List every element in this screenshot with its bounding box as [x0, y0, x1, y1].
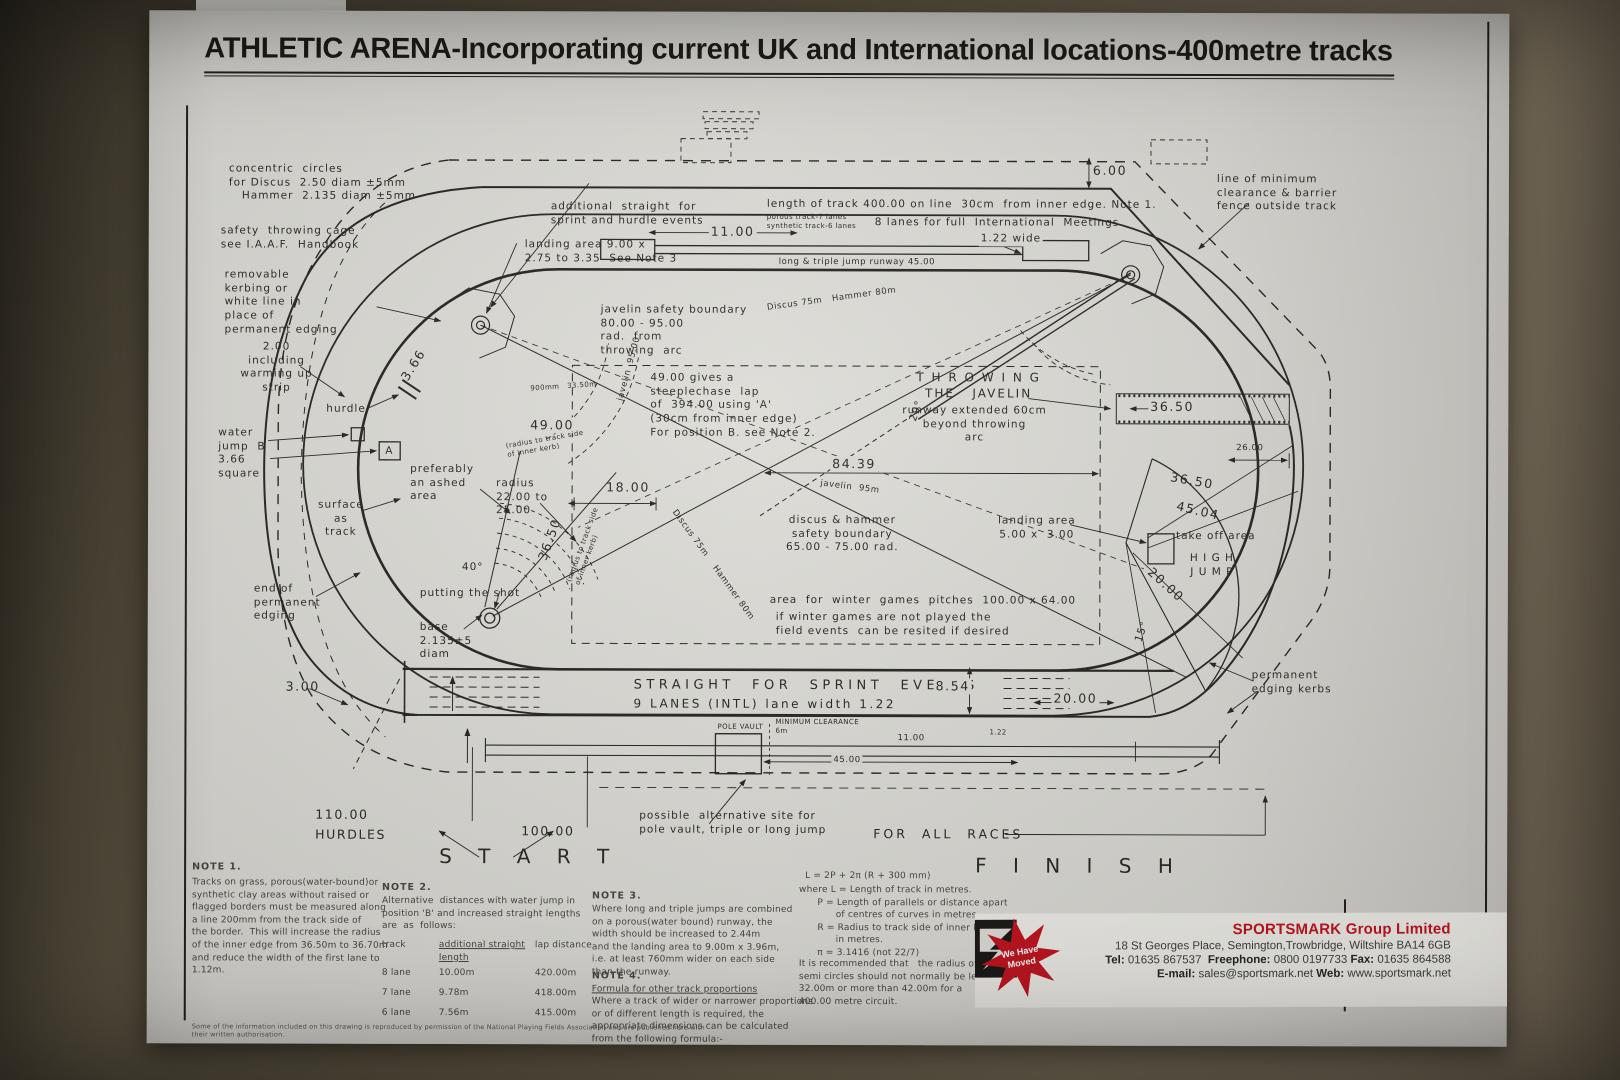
label-for-all-races: FOR ALL RACES	[873, 826, 1023, 843]
note2-col-track: track	[382, 939, 406, 952]
label-water-jump: water jump B 3.66 square	[218, 426, 266, 481]
note2-row2-lap: 418.00m	[535, 987, 577, 1000]
label-alt-site: possible alternative site for pole vault…	[639, 810, 826, 838]
vendor-contact-block: SPORTSMARK Group Limited 18 St Georges P…	[1021, 921, 1451, 981]
web-label: Web:	[1316, 968, 1344, 980]
label-lanes-small: porous track-7 lanes synthetic track-6 l…	[767, 213, 856, 231]
note2-row3-lap: 415.00m	[535, 1007, 577, 1020]
label-finish: F I N I S H	[975, 852, 1183, 879]
label-radius-22-25: radius 22.00 to 25.00	[496, 477, 548, 518]
vendor-name: SPORTSMARK Group Limited	[1021, 921, 1451, 939]
label-dim-854: 8.54	[934, 678, 972, 694]
label-permanent-kerbs: permanent edging kerbs	[1252, 669, 1332, 696]
athletics-poster: ATHLETIC ARENA-Incorporating current UK …	[147, 10, 1510, 1047]
note3-body: Where long and triple jumps are combined…	[592, 903, 793, 979]
label-dim-1100b: 11.00	[895, 733, 926, 744]
label-removable-kerbing: removable kerbing or white line in place…	[225, 268, 338, 336]
label-winter-games-1: area for winter games pitches 100.00 x 6…	[770, 594, 1076, 608]
email-label: E-mail:	[1157, 968, 1195, 980]
label-runway-45: long & triple jump runway 45.00	[777, 257, 938, 268]
label-dim-11: 11.00	[709, 224, 757, 240]
label-dim-4500: 45.00	[831, 755, 862, 766]
note2-row2-lane: 7 lane	[382, 987, 411, 1000]
label-putting-shot: putting the shot	[420, 587, 520, 601]
label-pole-vault: POLE VAULT	[717, 723, 763, 732]
photo-background: ATHLETIC ARENA-Incorporating current UK …	[0, 0, 1620, 1080]
note1-heading: NOTE 1.	[192, 861, 242, 872]
footer-disclaimer: Some of the information included on this…	[192, 1022, 712, 1039]
label-min-clearance: MINIMUM CLEARANCE 6m	[775, 718, 859, 736]
label-take-off-area: take off area	[1176, 530, 1256, 544]
note2-row1-lap: 420.00m	[535, 967, 577, 980]
label-nine-lanes: 9 LANES (INTL) lane width 1.22	[634, 696, 896, 712]
label-warming-strip: 2.00 including warming up strip	[240, 340, 312, 395]
note2-col-straight: additional straight length	[439, 939, 525, 964]
label-sprint-events: STRAIGHT FOR SPRINT EVENTS	[634, 677, 979, 695]
label-start: S T A R T	[439, 843, 619, 869]
note2-row3-lane: 6 lane	[382, 1007, 411, 1020]
note2-heading: NOTE 2.	[382, 882, 432, 893]
note2-col-lap: lap distance	[535, 939, 592, 952]
label-lane-wide: 1.22 wide	[979, 232, 1043, 246]
label-dim-6: 6.00	[1093, 163, 1127, 179]
label-winter-games-2: if winter games are not played the field…	[776, 611, 1010, 639]
tel-value: 01635 867537	[1128, 954, 1202, 966]
label-dim-26: 26.00	[1236, 443, 1263, 454]
note2-row2-straight: 9.78m	[439, 987, 469, 1000]
label-a-marker: A	[385, 445, 393, 459]
freephone-label: Freephone:	[1208, 954, 1271, 966]
note2-row1-straight: 10.00m	[439, 967, 475, 980]
note2-body: Alternative distances with water jump in…	[382, 895, 581, 933]
label-clearance-line: line of minimum clearance & barrier fenc…	[1217, 173, 1337, 214]
label-dim-100: 100.00	[521, 823, 574, 839]
label-additional-straight: additional straight for sprint and hurdl…	[551, 200, 704, 228]
formula-line1: L = 2P + 2π (R + 300 mm)	[805, 870, 931, 883]
note4-heading: NOTE 4.	[592, 970, 642, 981]
label-discus-hammer-boundary: discus & hammer safety boundary 65.00 - …	[786, 514, 899, 555]
label-end-permanent: end of permanent edging	[254, 582, 321, 623]
label-landing-area-right: landing area 5.00 x 3.00	[998, 514, 1076, 541]
label-dim-300: 3.00	[286, 679, 320, 695]
note1-body: Tracks on grass, porous(water-bound)or s…	[192, 876, 388, 977]
label-dim-8439: 84.39	[830, 456, 878, 472]
vendor-address: 18 St Georges Place, Semington,Trowbridg…	[1021, 940, 1451, 953]
fax-label: Fax:	[1350, 954, 1374, 966]
label-steeplechase: 49.00 gives a steeplechase lap of 394.00…	[650, 372, 816, 441]
freephone-value: 0800 0197733	[1274, 954, 1348, 966]
label-preferably-ashed: preferably an ashed area	[410, 463, 474, 504]
label-high-jump: H I G H J U M P	[1190, 552, 1234, 579]
note2-row3-straight: 7.56m	[439, 1007, 469, 1020]
label-landing-area-top: landing area 9.00 x 2.75 to 3.35 See Not…	[525, 238, 678, 266]
label-javelin-boundary: javelin safety boundary 80.00 - 95.00 ra…	[600, 303, 747, 358]
label-dim-18: 18.00	[606, 479, 650, 495]
note2-row1-lane: 8 lane	[382, 967, 411, 980]
note3-heading: NOTE 3.	[592, 890, 642, 901]
label-dim-122: 1.22	[989, 728, 1006, 737]
label-throwing-javelin: T H R O W I N G THE JAVELIN	[916, 370, 1041, 402]
tel-label: Tel:	[1105, 954, 1125, 966]
vendor-email-line: E-mail: sales@sportsmark.net Web: www.sp…	[1021, 968, 1451, 981]
label-lanes-8: 8 lanes for full International Meetings	[875, 216, 1119, 230]
fax-value: 01635 864588	[1377, 954, 1451, 966]
email-value[interactable]: sales@sportsmark.net	[1198, 968, 1313, 980]
leader-lines	[267, 183, 1267, 860]
javelin-runway-right	[1116, 394, 1289, 424]
label-dim-3650-runway: 36.50	[1148, 399, 1196, 415]
label-deg-40: 40°	[462, 561, 484, 575]
label-track-length: length of track 400.00 on line 30cm from…	[767, 198, 1157, 213]
label-dim-2000: 20.00	[1052, 691, 1100, 707]
label-surface-as-track: surface as track	[318, 499, 364, 540]
label-base-diam: base 2.135±5 diam	[420, 621, 473, 662]
vendor-panel: We Have Moved SPORTSMARK Group Limited 1…	[975, 912, 1507, 1007]
alt-runway-dashed	[681, 112, 1207, 164]
label-safety-cage: safety throwing cage see I.A.A.F. Handbo…	[221, 224, 360, 252]
web-value[interactable]: www.sportsmark.net	[1347, 968, 1451, 980]
vendor-phone-line: Tel: 01635 867537 Freephone: 0800 019773…	[1021, 954, 1451, 967]
label-hurdle: hurdle	[326, 403, 366, 417]
label-concentric-circles: concentric circles for Discus 2.50 diam …	[229, 162, 416, 203]
label-hurdles-110: 110.00 HURDLES	[315, 805, 386, 845]
